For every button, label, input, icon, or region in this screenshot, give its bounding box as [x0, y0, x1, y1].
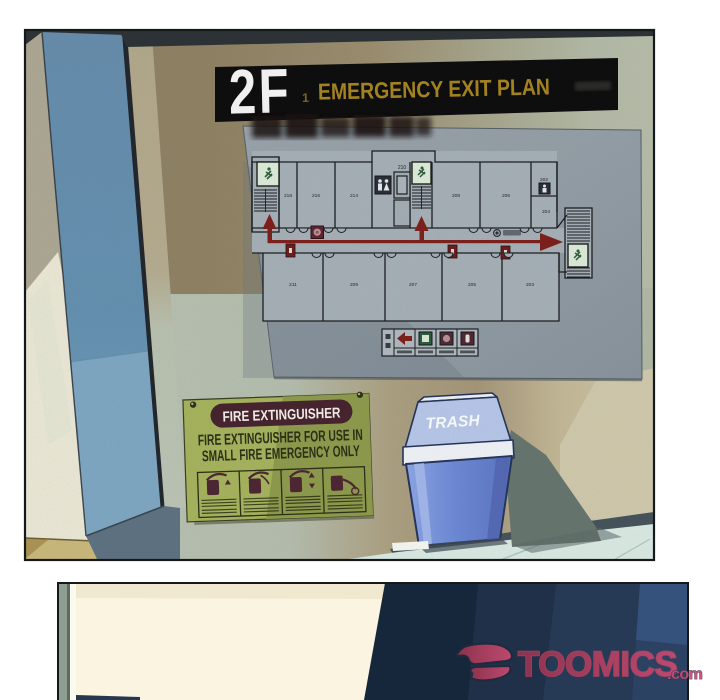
svg-text:.com: .com	[667, 666, 703, 683]
svg-text:TOOMICS: TOOMICS	[518, 645, 677, 684]
